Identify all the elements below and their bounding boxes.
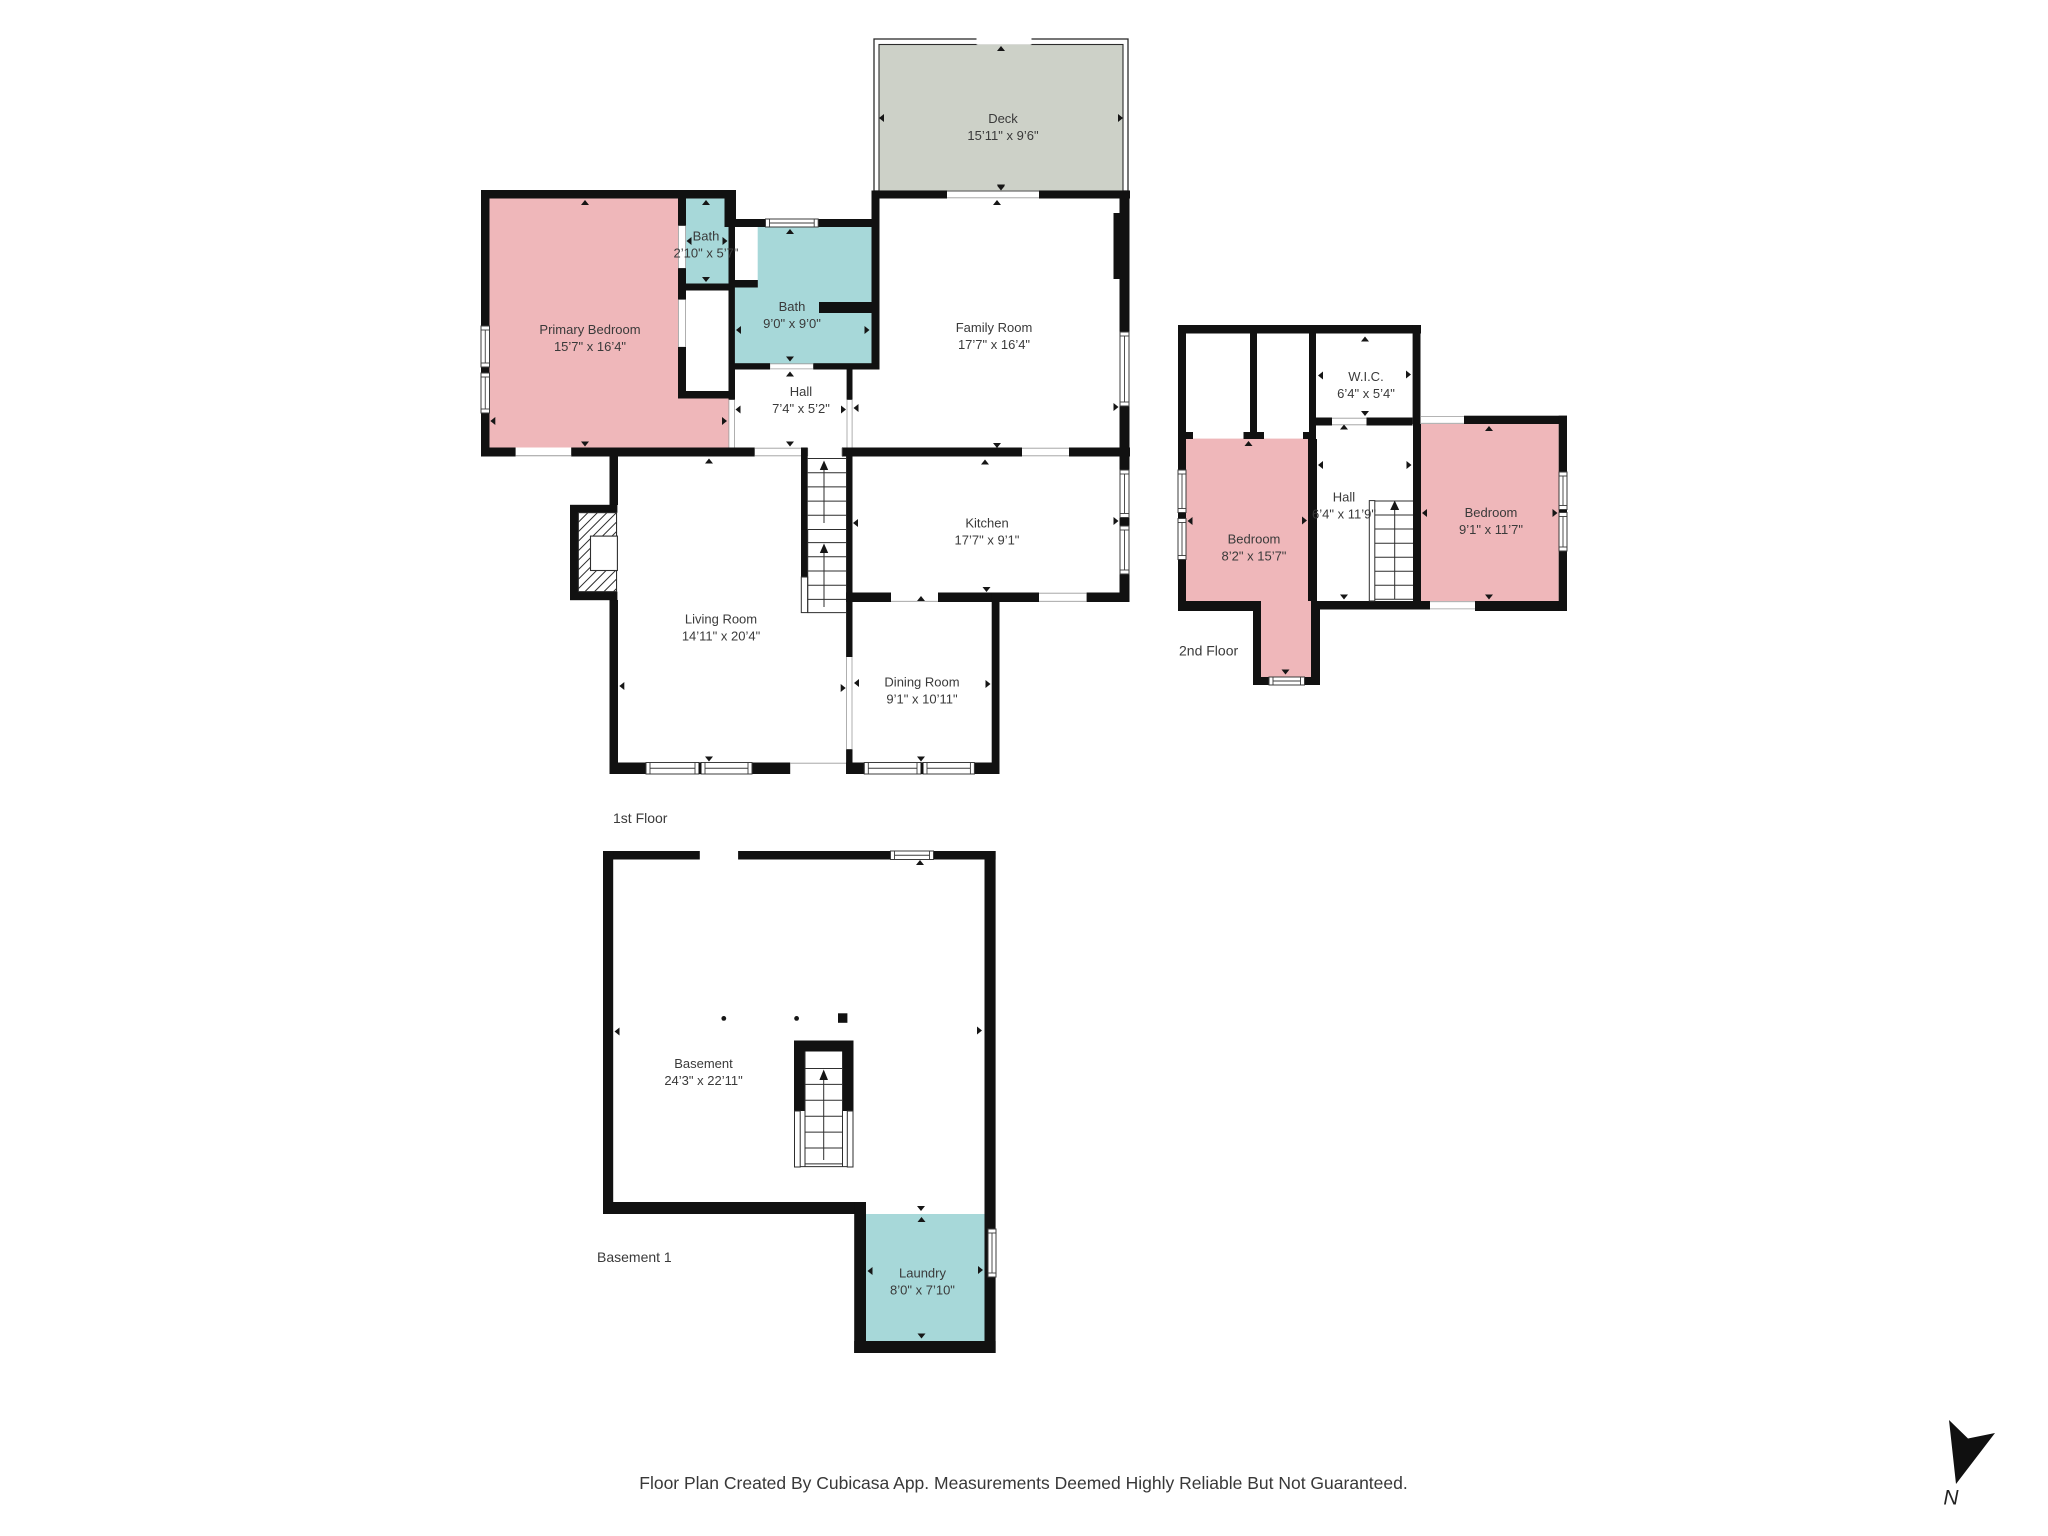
svg-text:Bedroom: Bedroom (1228, 531, 1281, 546)
svg-text:24’3" x 22’11": 24’3" x 22’11" (664, 1073, 743, 1088)
svg-text:Basement: Basement (674, 1056, 733, 1071)
svg-text:Kitchen: Kitchen (965, 515, 1008, 530)
svg-text:Living Room: Living Room (685, 611, 757, 626)
svg-text:Dining Room: Dining Room (884, 674, 959, 689)
svg-text:6’4" x 11’9": 6’4" x 11’9" (1312, 506, 1376, 521)
svg-text:17’7" x 16’4": 17’7" x 16’4" (958, 337, 1030, 352)
svg-text:Family Room: Family Room (956, 320, 1033, 335)
svg-text:7’4" x 5’2": 7’4" x 5’2" (772, 401, 830, 416)
svg-text:Hall: Hall (790, 384, 813, 399)
svg-text:2nd Floor: 2nd Floor (1179, 643, 1238, 659)
svg-text:Bedroom: Bedroom (1465, 505, 1518, 520)
svg-text:Bath: Bath (779, 299, 806, 314)
svg-text:Laundry: Laundry (899, 1265, 946, 1280)
svg-text:Basement 1: Basement 1 (597, 1249, 672, 1265)
svg-text:15’11" x 9’6": 15’11" x 9’6" (967, 128, 1039, 143)
svg-text:Hall: Hall (1333, 489, 1356, 504)
svg-text:9’1" x 11’7": 9’1" x 11’7" (1459, 522, 1523, 537)
svg-text:Primary Bedroom: Primary Bedroom (539, 322, 640, 337)
svg-text:Bath: Bath (693, 228, 720, 243)
svg-text:2’10" x 5’7": 2’10" x 5’7" (674, 245, 739, 260)
svg-text:8’2" x 15’7": 8’2" x 15’7" (1222, 548, 1287, 563)
svg-text:Deck: Deck (988, 111, 1018, 126)
svg-text:14’11" x 20’4": 14’11" x 20’4" (682, 628, 761, 643)
svg-text:15’7" x 16’4": 15’7" x 16’4" (554, 339, 626, 354)
svg-text:Floor Plan Created By Cubicasa: Floor Plan Created By Cubicasa App. Meas… (639, 1473, 1407, 1493)
svg-text:8’0" x 7’10": 8’0" x 7’10" (890, 1282, 955, 1297)
svg-text:6’4" x 5’4": 6’4" x 5’4" (1337, 386, 1395, 401)
svg-text:1st Floor: 1st Floor (613, 810, 668, 826)
svg-text:9’1" x 10’11": 9’1" x 10’11" (886, 691, 958, 706)
svg-text:17’7" x 9’1": 17’7" x 9’1" (955, 532, 1020, 547)
svg-text:N: N (1943, 1487, 1959, 1510)
svg-text:9’0" x 9’0": 9’0" x 9’0" (763, 316, 821, 331)
svg-text:W.I.C.: W.I.C. (1348, 369, 1383, 384)
